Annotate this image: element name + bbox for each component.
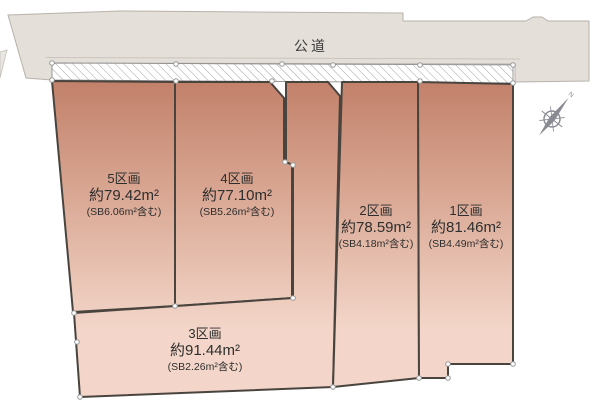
compass-north-text: N <box>567 91 575 100</box>
plot-5-shape <box>52 81 175 312</box>
plot-1-shape <box>418 82 513 378</box>
compass-icon: N <box>529 84 583 143</box>
plot-2-shape <box>333 82 419 387</box>
site-plan-svg: N <box>0 0 600 412</box>
plot-4-shape <box>175 82 292 306</box>
site-plan: N 公道 5区画 約79.42m² (SB6.06m²含む) 4区画 約77.1… <box>0 0 600 412</box>
road-sliver <box>0 50 7 78</box>
